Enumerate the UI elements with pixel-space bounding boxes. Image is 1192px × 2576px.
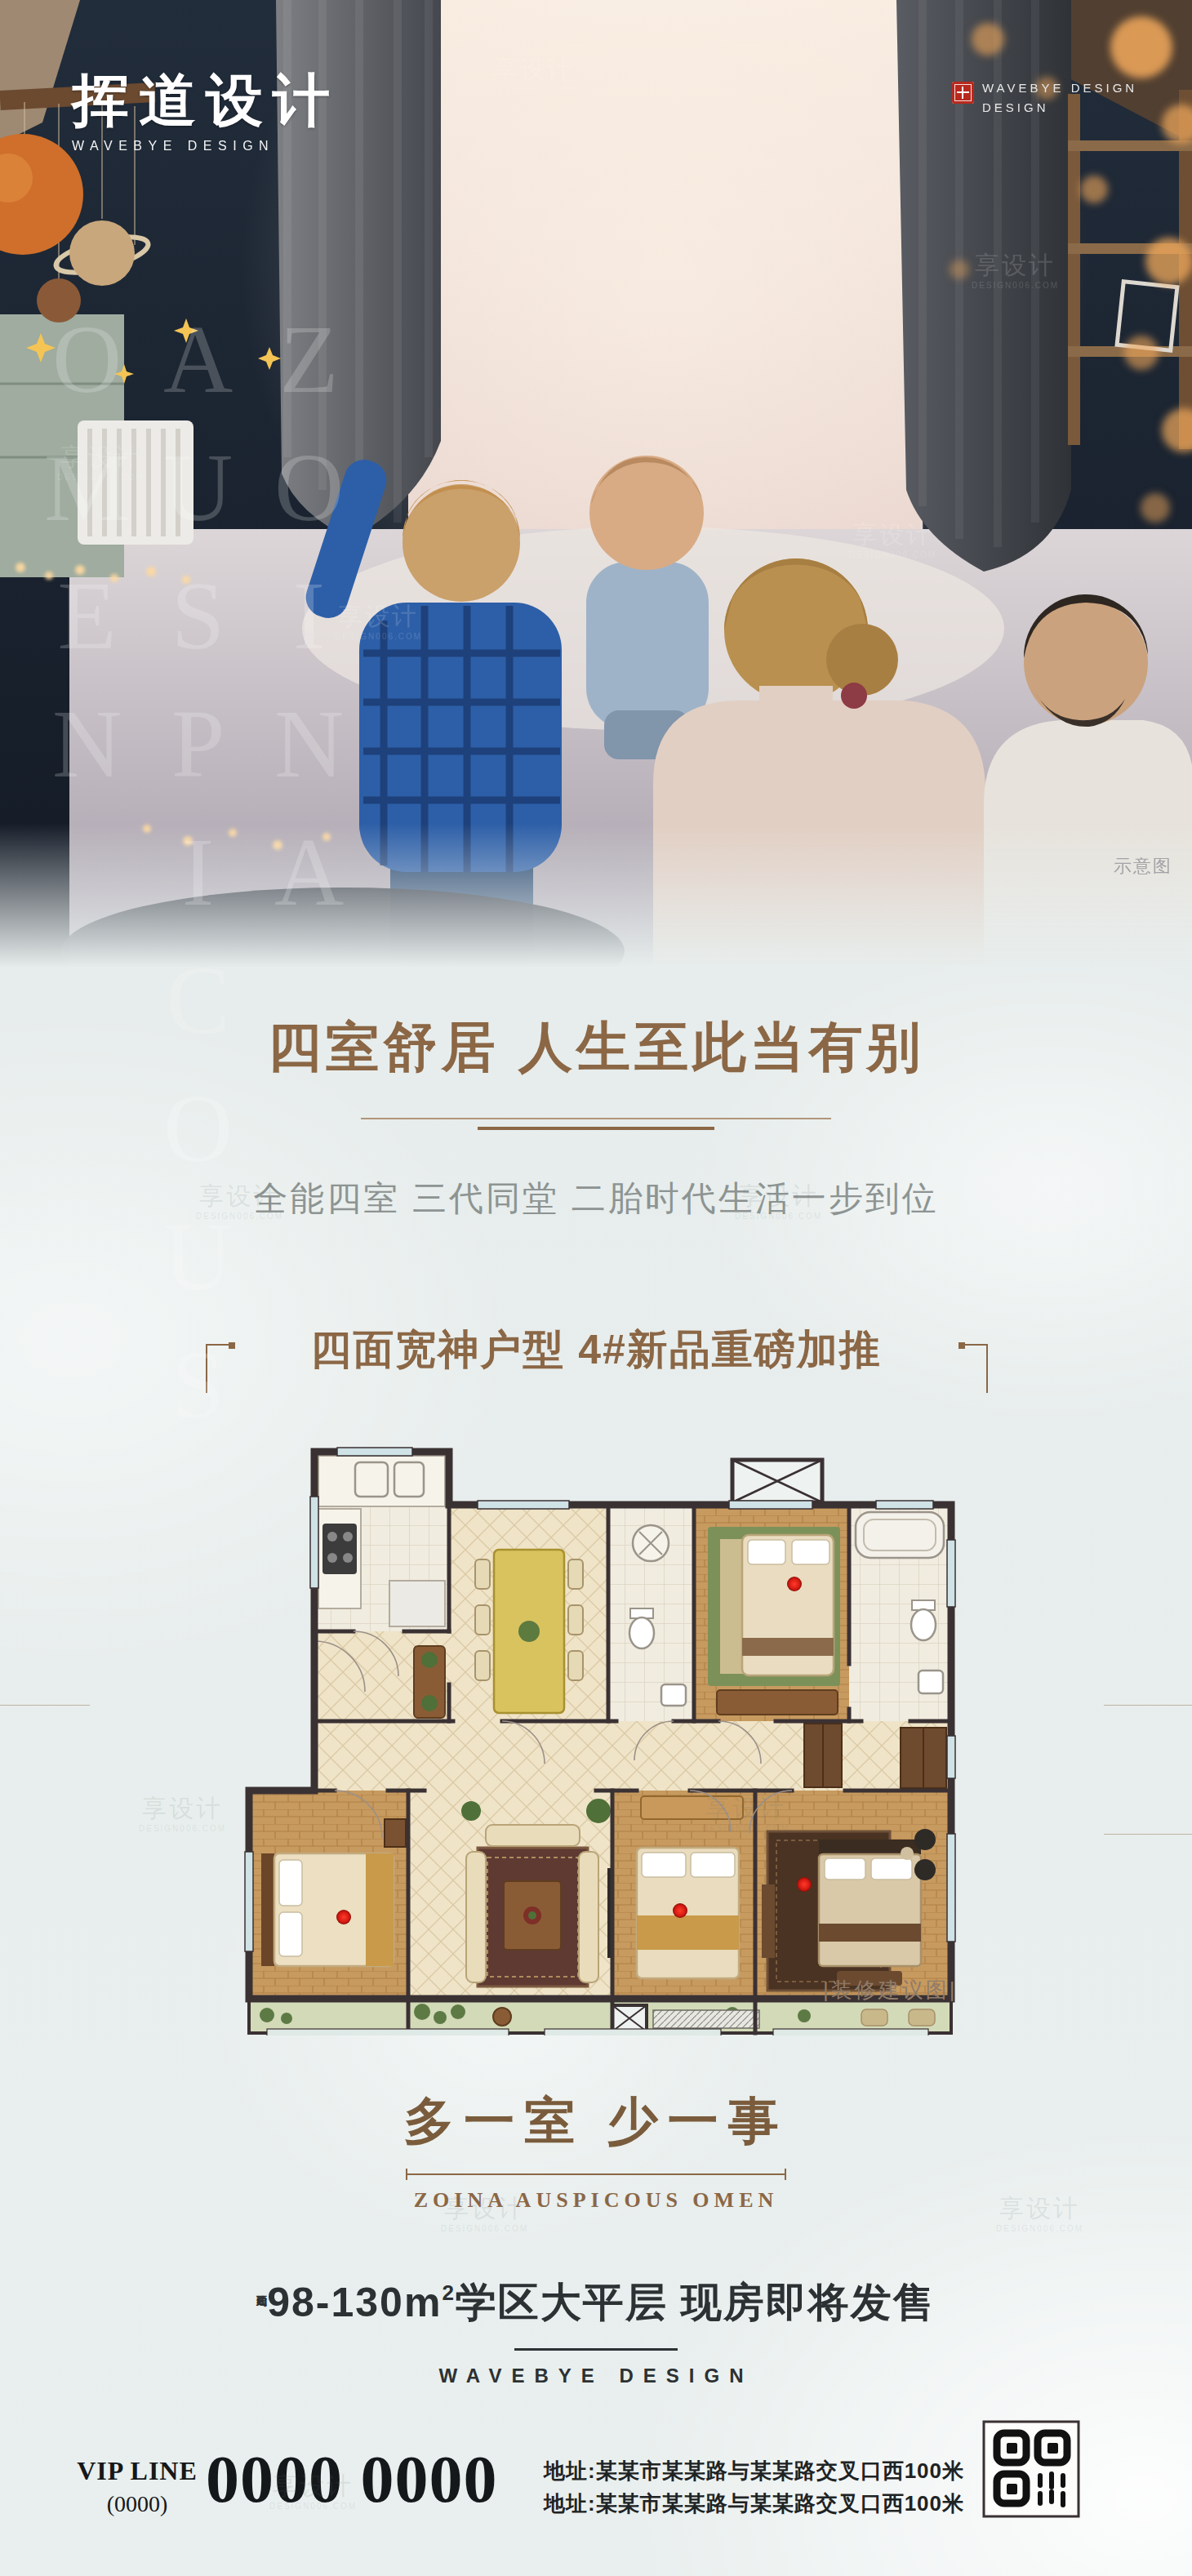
brand-topright: WAVEBYE DESIGN DESIGN — [952, 82, 1137, 113]
address-block: 地址:某某市某某路与某某路交叉口西100米 地址:某某市某某路与某某路交叉口西1… — [544, 2454, 964, 2520]
brand-logo-en: WAVEBYE DESIGN — [72, 139, 340, 153]
phone-number: 0000 0000 — [206, 2441, 498, 2518]
offer-brand: WAVEBYE DESIGN — [0, 2365, 1192, 2387]
corner-bracket-right — [962, 1344, 988, 1393]
vip-paren: (0000) — [72, 2491, 202, 2517]
offer-line: 建面约 98-130m2学区大平层 现房即将发售 — [0, 2280, 1192, 2327]
area-prefix: 建面约 — [256, 2286, 267, 2289]
slogan-cn: 多一室 少一事 — [0, 2087, 1192, 2156]
brand-seal-icon — [952, 82, 974, 104]
slogan-en: ZOINA AUSPICOUS OMEN — [0, 2188, 1192, 2213]
floor-plan — [233, 1427, 967, 2035]
hero-title: 四室舒居 人生至此当有别 — [0, 1011, 1192, 1084]
hero-subtitle: 全能四室 三代同堂 二胎时代生活一步到位 — [0, 1176, 1192, 1221]
address-line2: 地址:某某市某某路与某某路交叉口西100米 — [544, 2487, 964, 2520]
dimension-line — [0, 1705, 90, 1706]
dimension-line — [1104, 1705, 1192, 1706]
corner-bracket-left — [206, 1344, 232, 1393]
dimension-line — [1104, 1834, 1192, 1835]
hero-divider-long — [361, 1118, 831, 1119]
hero-divider-short — [478, 1127, 714, 1130]
plan-caption: |装修建议图| — [823, 1976, 958, 2004]
topright-line1: WAVEBYE DESIGN — [982, 82, 1137, 94]
vip-label: VIP LINE — [72, 2456, 202, 2486]
brand-logo-cn: 挥道设计 — [72, 72, 340, 129]
offer-divider — [514, 2348, 678, 2351]
qr-code — [982, 2420, 1080, 2518]
address-line1: 地址:某某市某某路与某某路交叉口西100米 — [544, 2454, 964, 2487]
slogan-rule — [406, 2173, 786, 2175]
photo-caption: 示意图 — [1114, 854, 1172, 879]
plan-section-title: 四面宽神户型 4#新品重磅加推 — [0, 1323, 1192, 1377]
topright-line2: DESIGN — [982, 101, 1137, 113]
poster: 挥道设计 WAVEBYE DESIGN WAVEBYE DESIGN DESIG… — [0, 0, 1192, 2576]
area-superscript: 2 — [442, 2280, 455, 2305]
area-text: 98-130m2学区大平层 现房即将发售 — [267, 2280, 936, 2327]
brand-logo: 挥道设计 WAVEBYE DESIGN — [72, 72, 340, 153]
watermark-tile: 享设计DESIGN006.COM — [139, 1796, 226, 1833]
vip-line-block: VIP LINE (0000) — [72, 2456, 202, 2517]
